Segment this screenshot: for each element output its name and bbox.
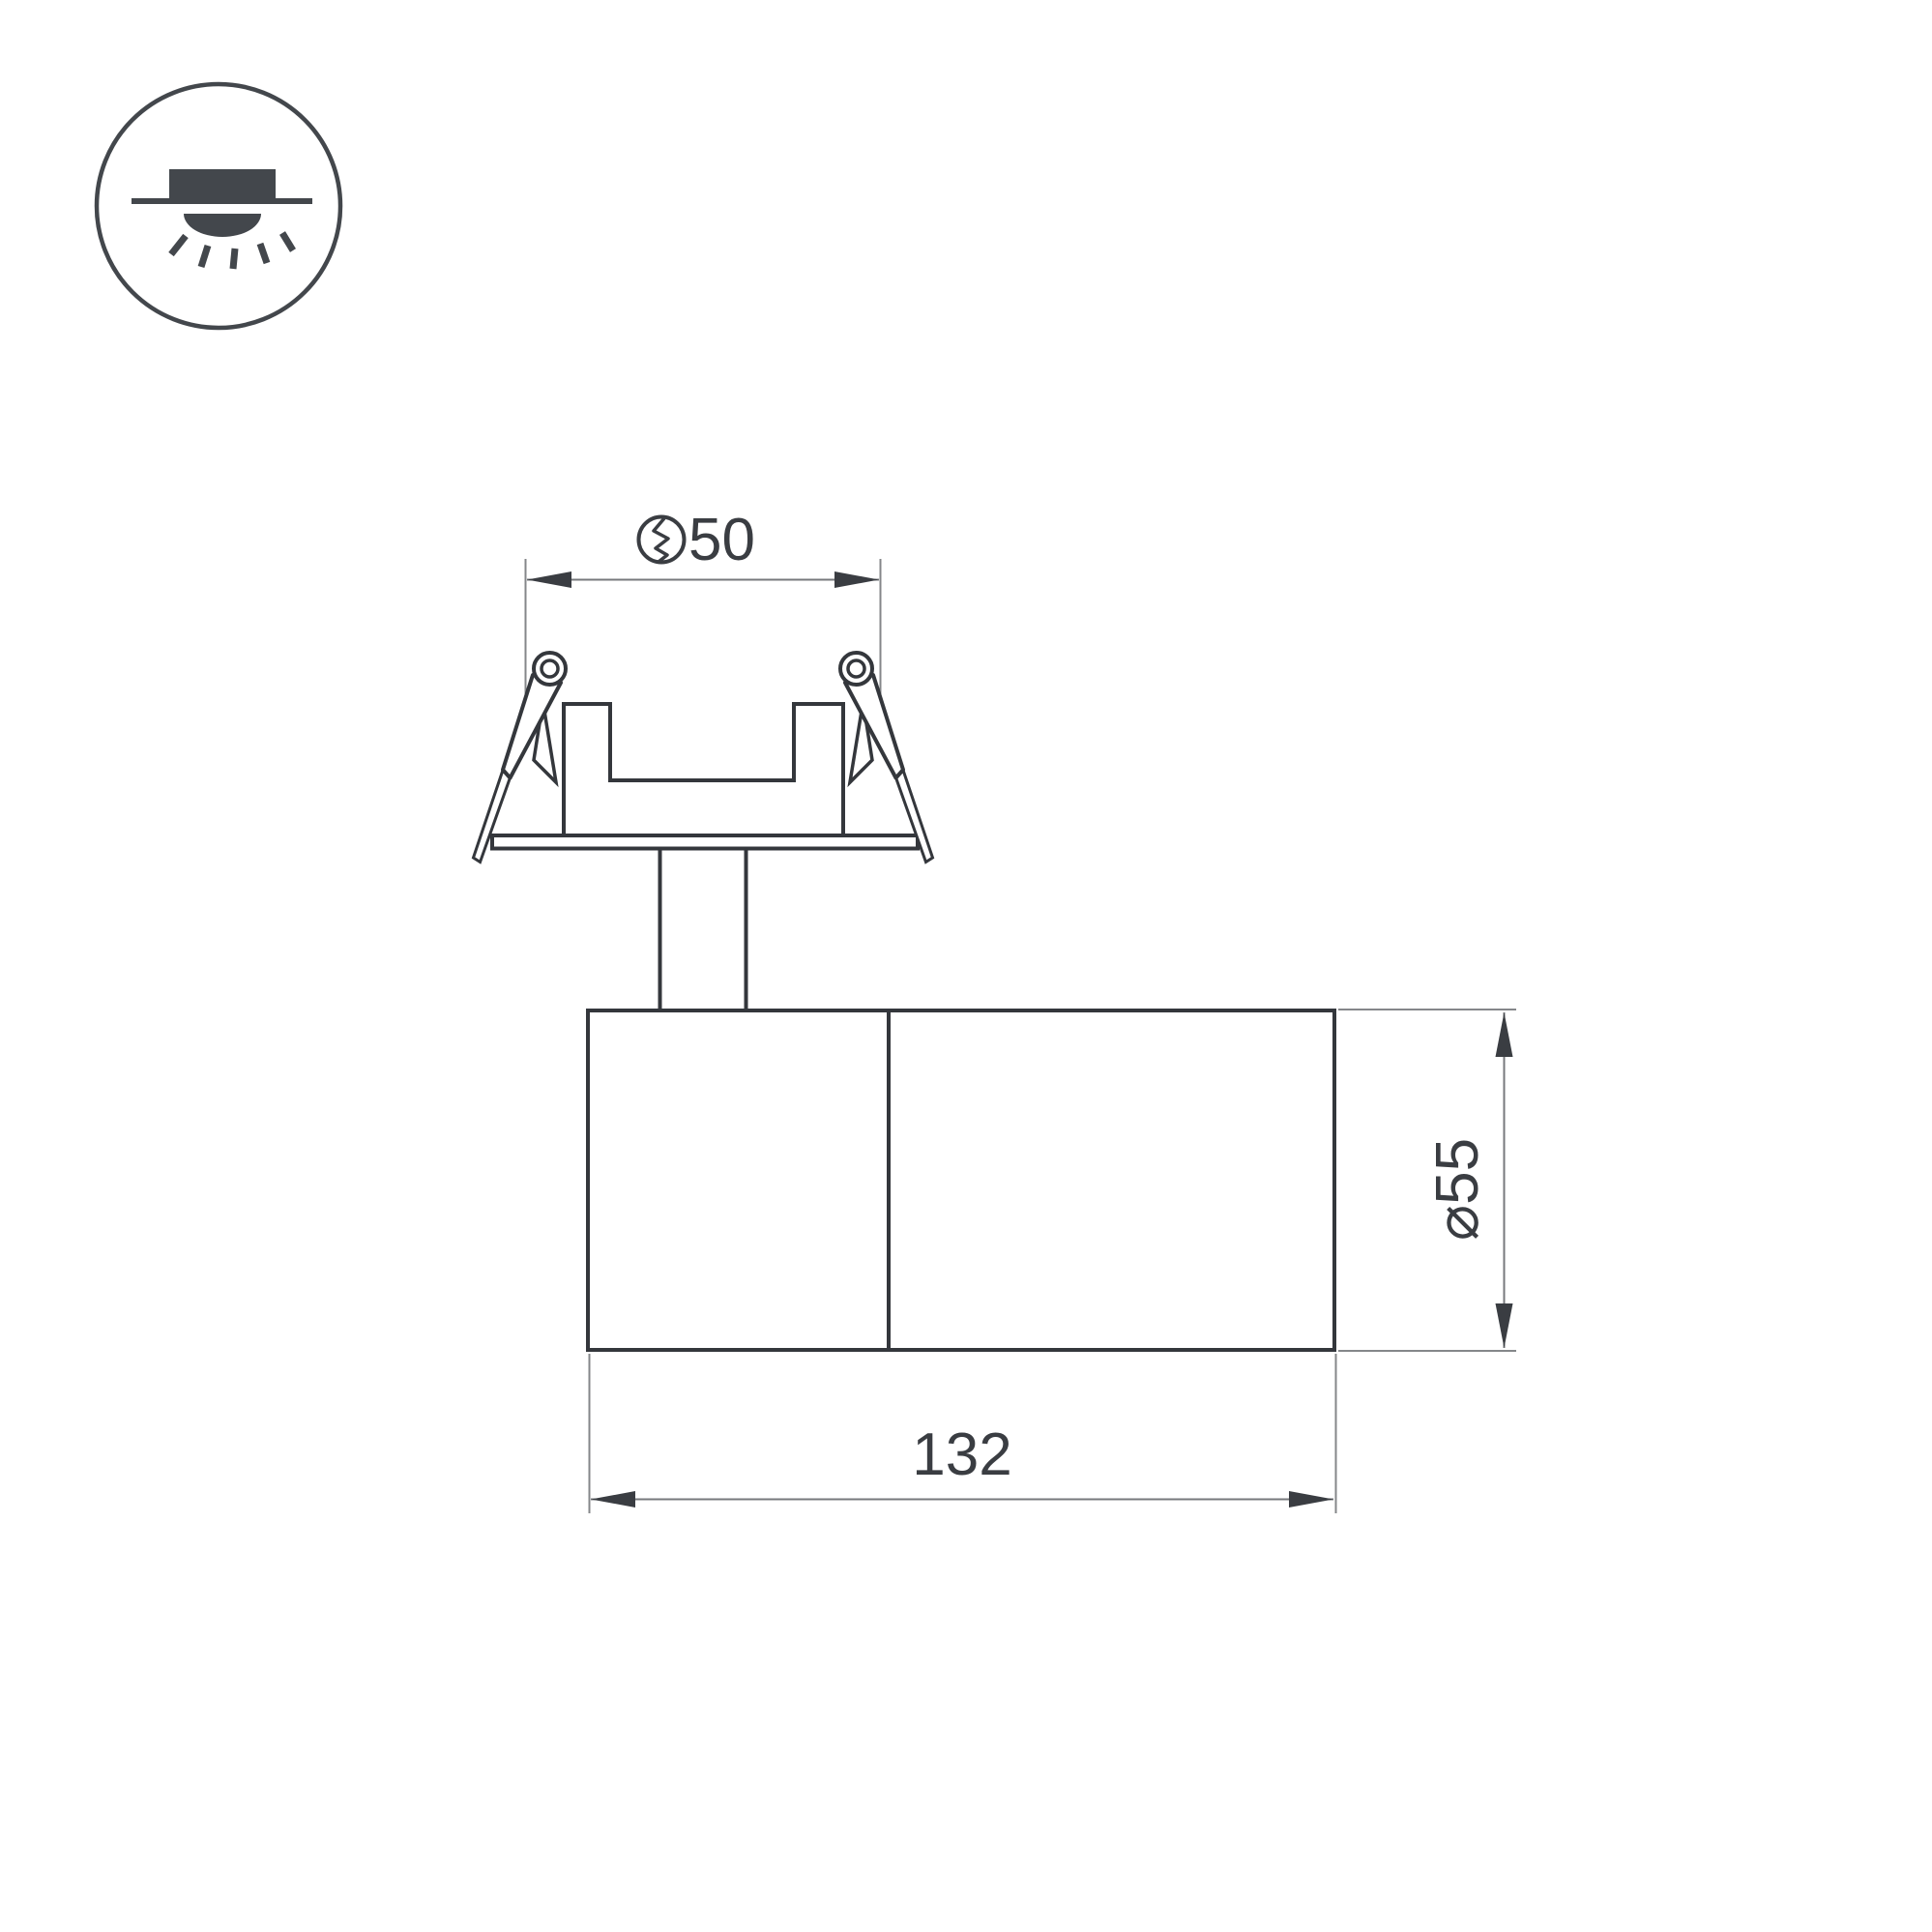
dimension-arrow-left <box>527 571 571 588</box>
dimension-arrow-up <box>1496 1012 1513 1057</box>
dimension-arrow-down <box>1496 1303 1513 1348</box>
bracket-housing <box>564 704 843 837</box>
length-dimension-label: 132 <box>912 1421 1011 1488</box>
mounting-bracket <box>474 653 933 1010</box>
spring-clip-left <box>474 653 567 863</box>
lamp-body <box>588 1010 1334 1350</box>
body-outline <box>588 1010 1334 1350</box>
length-dimension: 132 <box>590 1354 1336 1513</box>
diameter-dimension-label: ⌀55 <box>1424 1138 1491 1241</box>
cutout-dimension: 50 <box>526 507 881 727</box>
stem <box>660 848 746 1010</box>
hole-cutout-icon <box>639 517 685 563</box>
recessed-downlight-icon <box>97 84 340 328</box>
dimension-drawing: 50 <box>0 0 1932 1932</box>
dimension-arrow-right <box>834 571 879 588</box>
diameter-dimension: ⌀55 <box>1338 1010 1516 1351</box>
badge-light-rays <box>171 233 293 269</box>
drawing-canvas: 50 <box>0 0 1932 1932</box>
badge-housing <box>169 169 276 198</box>
clip-pivot-hole <box>848 660 864 677</box>
spring-clip-right <box>840 653 933 863</box>
dimension-arrow-left <box>591 1491 635 1508</box>
dimension-arrow-right <box>1289 1491 1333 1508</box>
badge-lamp-dome <box>184 214 261 237</box>
cutout-dimension-label: 50 <box>688 507 755 573</box>
clip-pivot-hole <box>542 660 558 677</box>
mounting-flange <box>492 835 918 849</box>
badge-ceiling-line <box>132 198 312 204</box>
badge-circle <box>97 84 340 328</box>
